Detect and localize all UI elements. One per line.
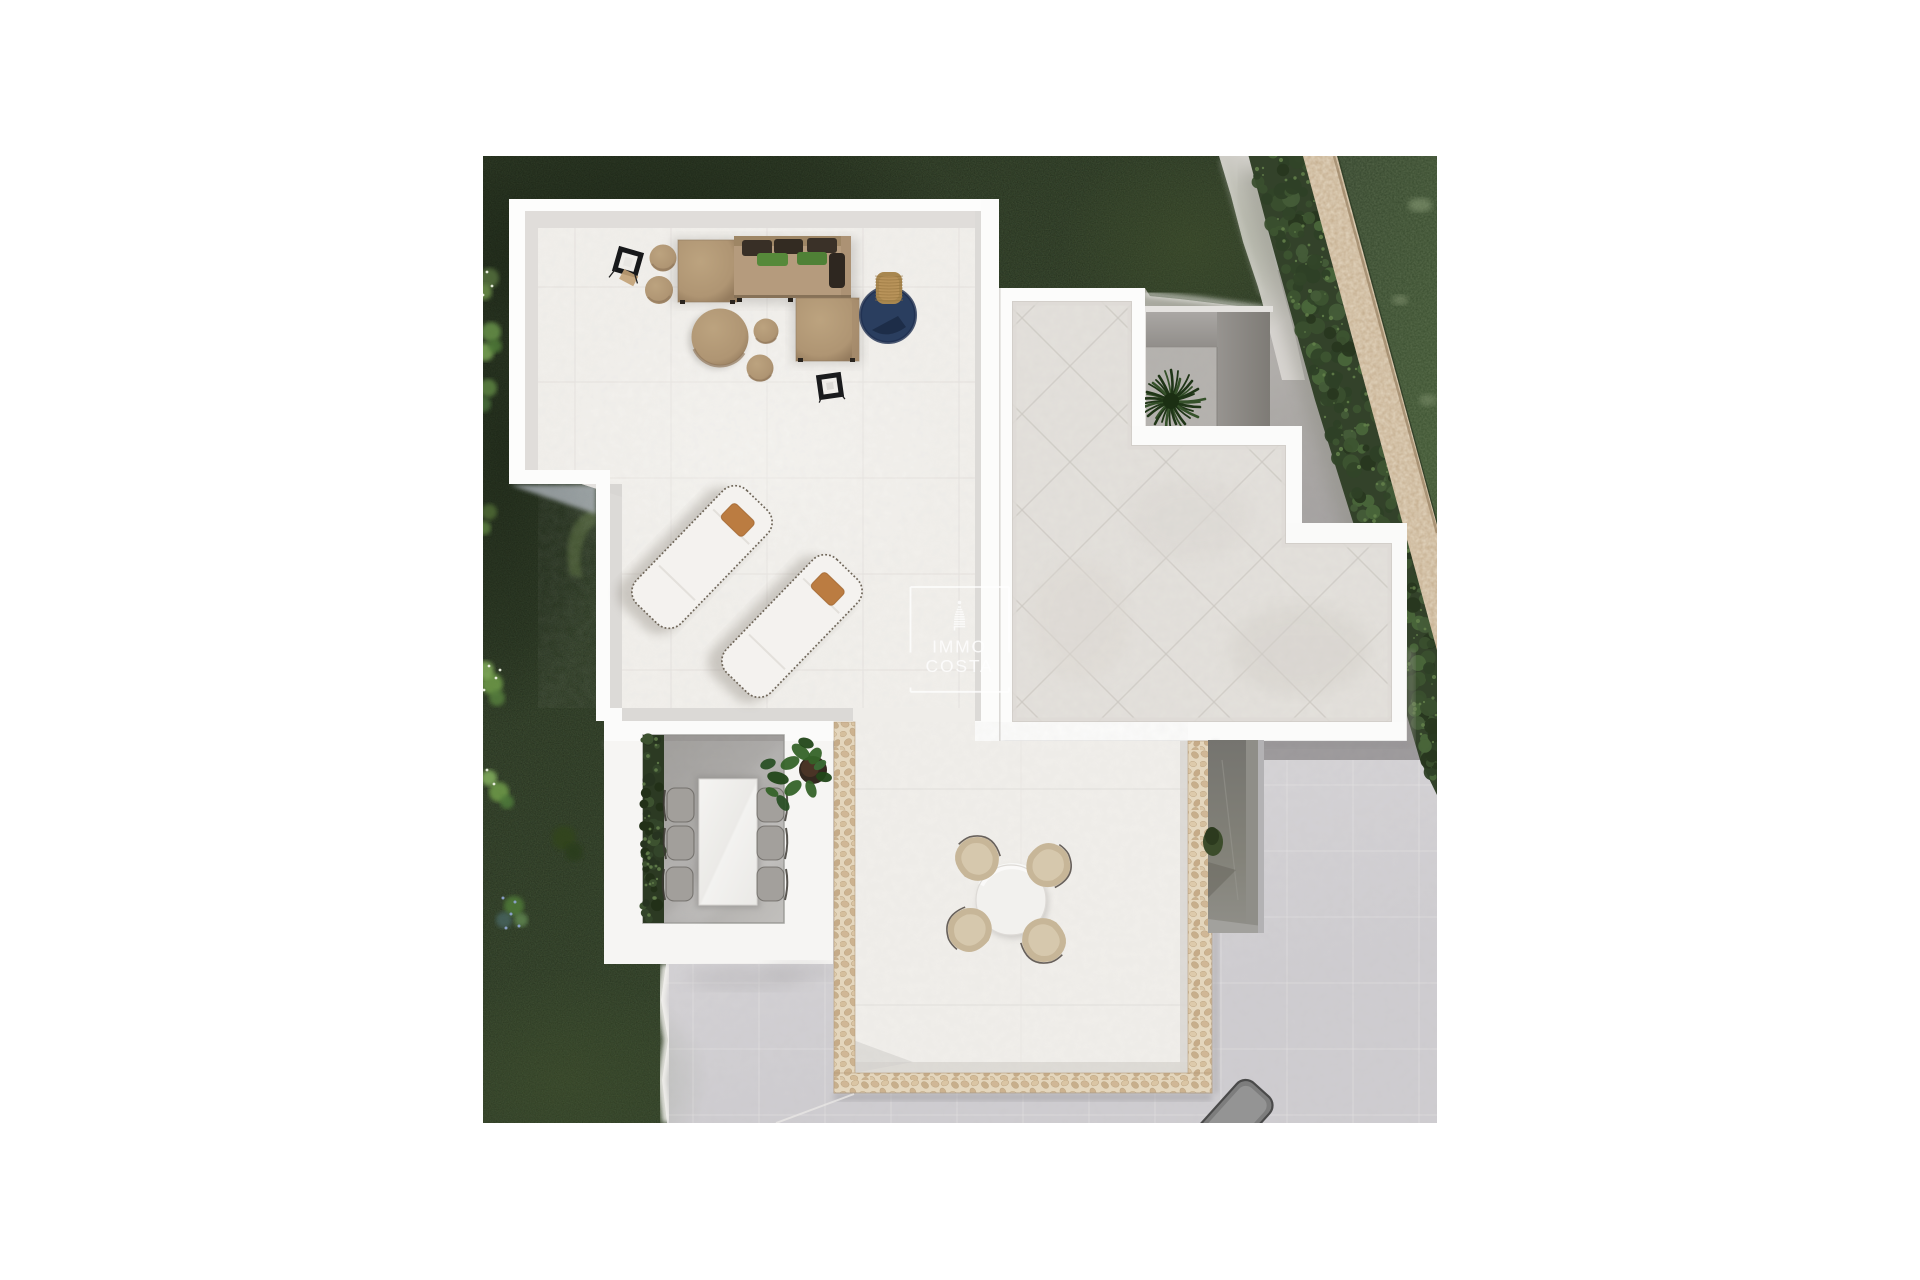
svg-text:IMMO: IMMO xyxy=(932,637,987,657)
svg-text:COSTA: COSTA xyxy=(926,656,994,676)
